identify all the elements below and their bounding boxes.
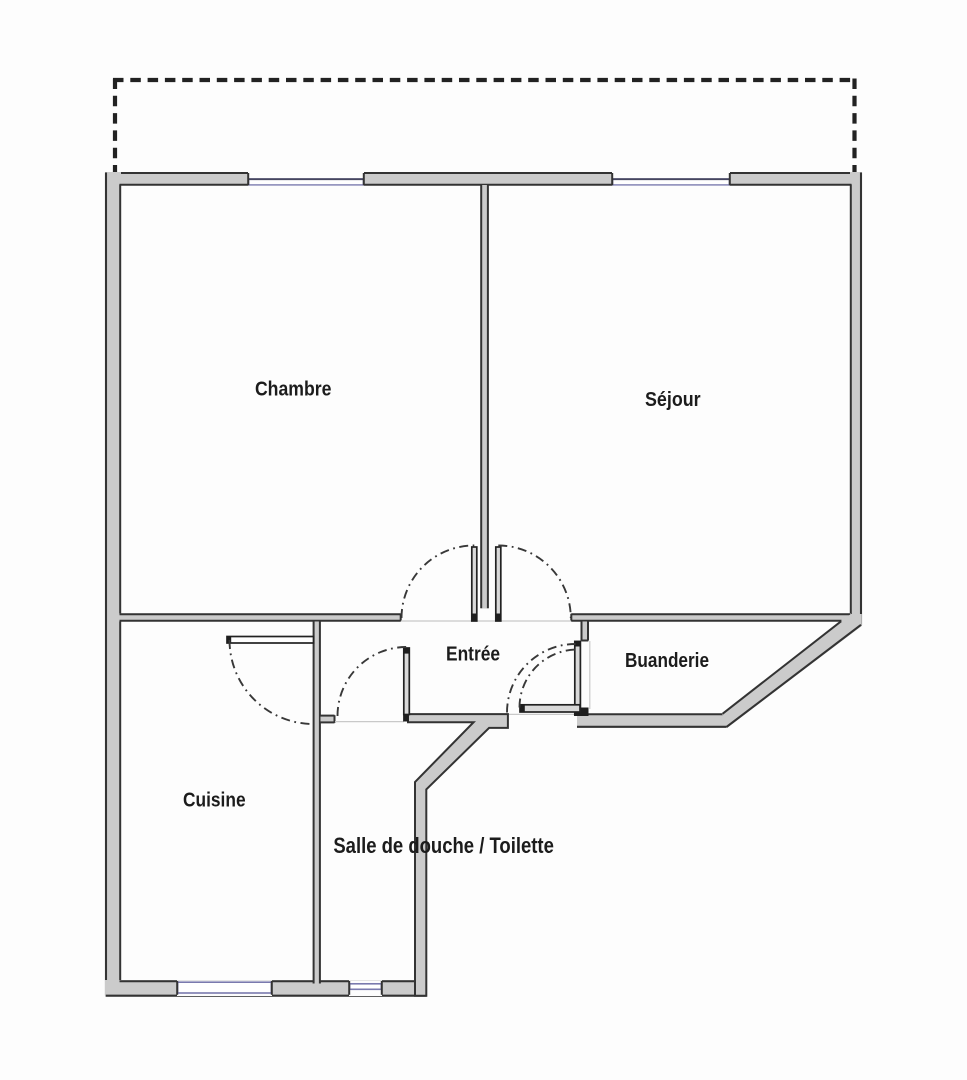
svg-text:Cuisine: Cuisine xyxy=(183,790,246,812)
svg-text:Entrée: Entrée xyxy=(446,644,500,666)
svg-text:Buanderie: Buanderie xyxy=(625,650,709,672)
svg-text:Séjour: Séjour xyxy=(645,389,701,411)
svg-text:Chambre: Chambre xyxy=(255,379,332,401)
svg-text:Salle de douche / Toilette: Salle de douche / Toilette xyxy=(333,833,554,858)
